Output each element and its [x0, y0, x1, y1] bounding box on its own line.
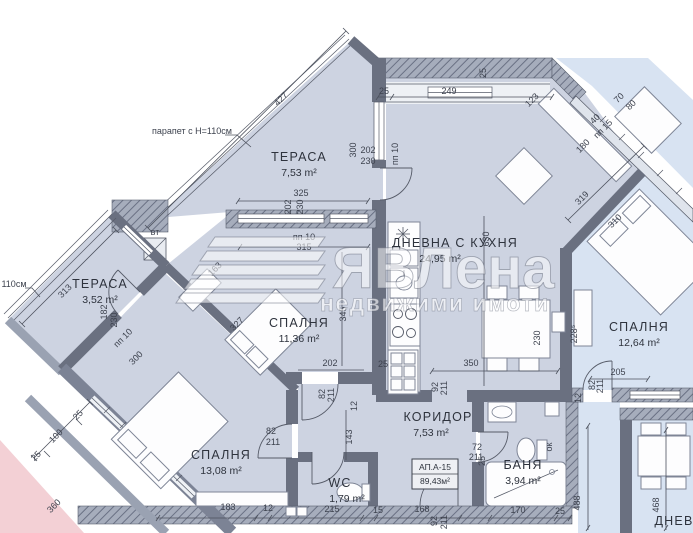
dim-label: 143 [344, 429, 354, 444]
dim-label: 205 [610, 367, 625, 377]
dim-label: 168 [414, 504, 429, 514]
dim-label: 230 [295, 199, 305, 214]
room-label: КОРИДОР [403, 410, 472, 424]
boiler-icon [545, 402, 559, 416]
dim-label: 300 [348, 142, 358, 157]
room-label: ТЕРАСА [72, 277, 128, 291]
room-area: 3,52 m² [82, 294, 118, 306]
dim-label: 211 [439, 515, 449, 529]
dim-label: 211 [595, 379, 605, 393]
dim-label: 182 [99, 304, 109, 319]
dim-label: 230 [109, 312, 119, 327]
dim-label: 170 [510, 505, 525, 515]
dim-label: 183 [220, 502, 235, 512]
dim-label: 468 [651, 497, 661, 512]
room-label: WC [328, 476, 351, 490]
room-label: СПАЛНЯ [609, 320, 669, 334]
dim-label: 25 [379, 86, 389, 96]
dim-label: 202 [360, 145, 375, 155]
dim-label: 25 [555, 506, 565, 516]
room-label: СПАЛНЯ [269, 316, 329, 330]
dim-label: 110см [1, 279, 26, 289]
dim-label: 215 [324, 504, 339, 514]
room-area: 12,64 m² [618, 337, 660, 349]
dim-label: 211 [266, 437, 280, 447]
dim-label: 325 [293, 188, 308, 198]
dim-label: 211 [439, 381, 449, 395]
room-area: 11,36 m² [279, 333, 320, 345]
wardrobe-1308 [196, 492, 288, 506]
room-label: СПАЛНЯ [191, 448, 251, 462]
dim-label: 12 [349, 401, 359, 411]
dim-label: 25 [477, 456, 487, 466]
room-area: 7,53 m² [413, 427, 449, 439]
dim-label: 92 [429, 516, 439, 526]
dim-label: 202 [322, 358, 337, 368]
floor-plan: АП.А-15 89,43м² ТЕРАСА7,53 m²ТЕРАСА3,52 … [0, 0, 693, 533]
dim-label: 12 [573, 393, 583, 403]
dim-label: 228⁵ [569, 324, 579, 343]
apartment-id-label: АП.А-15 [419, 462, 451, 472]
dim-label: 25 [378, 359, 388, 369]
neighbor-strip-floor [578, 402, 620, 533]
apartment-info-box: АП.А-15 89,43м² [412, 459, 458, 489]
room-area: 13,08 m² [200, 465, 242, 477]
room-area: 3,94 m² [505, 475, 541, 487]
dim-label: 12 [263, 503, 273, 513]
dim-label: 230 [360, 156, 375, 166]
brand-tagline: недвижими имоти [320, 290, 550, 316]
dim-label: 82 [266, 426, 276, 436]
dim-label: 72 [472, 442, 482, 452]
room-label: ТЕРАСА [271, 150, 327, 164]
dim-label: пп 10 [390, 143, 400, 165]
dim-label: 350 [463, 358, 478, 368]
room-label: БАНЯ [503, 458, 542, 472]
dim-label: 211 [326, 388, 336, 402]
floor-plan-drawing: АП.А-15 89,43м² ТЕРАСА7,53 m²ТЕРАСА3,52 … [0, 0, 693, 533]
dim-label: ок [544, 442, 554, 451]
dim-label: 25 [71, 408, 85, 422]
kitchen-cabinet [388, 350, 418, 394]
dim-label: 202 [283, 199, 293, 214]
dim-label: 249 [441, 86, 456, 96]
room-area: 7,53 m² [281, 167, 317, 179]
dim-label: 25 [478, 68, 488, 78]
dim-label: 15 [373, 505, 383, 515]
bath-sink-icon [488, 402, 516, 422]
dim-label: вт [151, 227, 160, 237]
dim-label: парапет с Н=110см [152, 126, 232, 136]
dim-label: 488 [572, 495, 582, 510]
apartment-area-label: 89,43м² [420, 476, 450, 486]
neighbor-pink-floor [0, 440, 84, 533]
dim-label: 230 [532, 330, 542, 345]
room-label: ДНЕВ [655, 514, 693, 528]
